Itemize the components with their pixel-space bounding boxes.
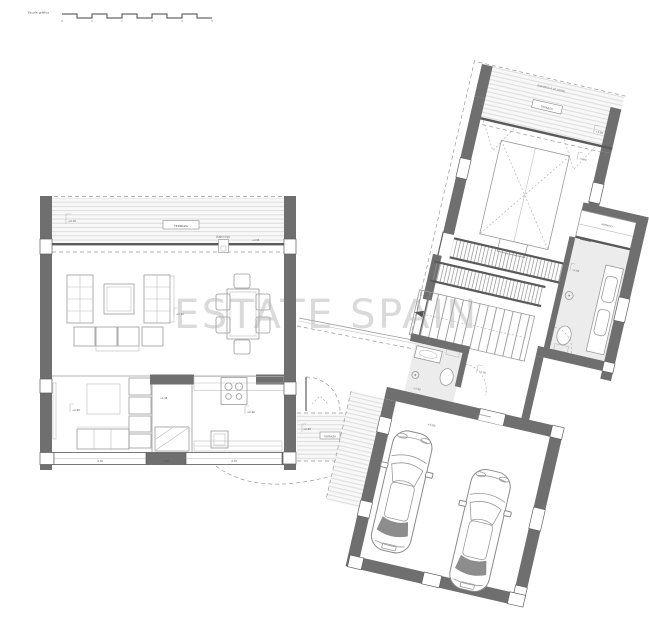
scale-bar: Escala gráfica 0 1 2 3 4 5 [28, 11, 213, 24]
terrace-left: +4.76 TERRAZA PUNTO FIJO +4.96 [40, 197, 296, 253]
scale-bar-label: Escala gráfica [28, 11, 49, 15]
scale-tick: 0 [61, 20, 63, 23]
kitchen-level: +2.90 [247, 410, 255, 414]
dim-label: 4.70 [97, 459, 103, 463]
walkway-level: +2.90 [303, 427, 311, 431]
kitchen: +2.90 [194, 375, 284, 452]
scale-tick: 2 [121, 20, 123, 23]
inner-hall: +1.98 [150, 375, 194, 453]
sofa-set [67, 275, 174, 351]
side-door [306, 377, 340, 411]
study-level: +2.90 [72, 408, 80, 412]
dim-label: 4.70 [231, 459, 237, 463]
fixed-point-label: PUNTO FIJO [216, 236, 230, 239]
scale-tick: 1 [91, 20, 93, 23]
walkway-label: TERRAZA [324, 434, 336, 438]
terrace-left-level: +4.76 [68, 219, 76, 223]
scale-bar-ruler [62, 14, 212, 18]
terrace-left-label: TERRAZA [173, 224, 189, 228]
dim-label: 1.90 [163, 459, 169, 463]
floor-plan-page: Escala gráfica 0 1 2 3 4 5 TERRAZA +2.90 [0, 0, 649, 623]
hall-level: +1.98 [160, 397, 168, 400]
scale-tick: 4 [181, 20, 183, 23]
scale-tick: 5 [211, 20, 213, 23]
watermark: ESTATE SPAIN [174, 292, 479, 338]
terrace-left-note: +4.96 [252, 239, 260, 242]
bathroom: ARMARIO +4.90 [534, 200, 649, 381]
scale-tick: 3 [151, 20, 153, 23]
void-room-level: +4.90 [579, 157, 587, 162]
